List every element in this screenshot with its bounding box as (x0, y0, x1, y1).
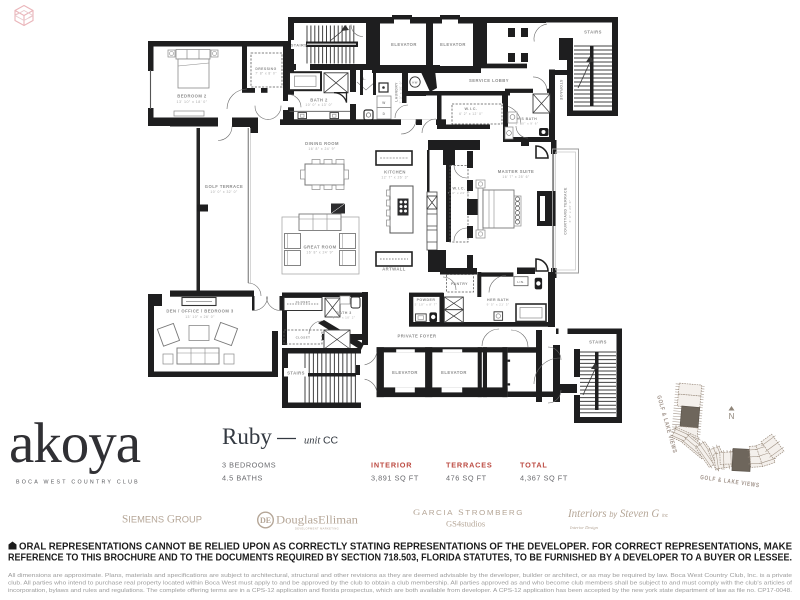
svg-text:MASTER SUITE: MASTER SUITE (498, 169, 535, 174)
svg-text:9' 4" x 10' 2": 9' 4" x 10' 2" (333, 316, 356, 320)
svg-text:W: W (382, 101, 385, 105)
svg-text:GS4studios: GS4studios (446, 519, 485, 529)
svg-text:CLOSET: CLOSET (296, 300, 311, 304)
svg-text:GARCIA STROMBERG: GARCIA STROMBERG (413, 507, 524, 517)
svg-text:ELEVATOR: ELEVATOR (441, 370, 467, 375)
svg-text:W.I.C.: W.I.C. (464, 107, 477, 111)
svg-text:4,367 SQ FT: 4,367 SQ FT (520, 474, 568, 483)
svg-text:akoya: akoya (9, 412, 141, 475)
svg-text:16' 8" x 24' 9": 16' 8" x 24' 9" (308, 147, 336, 151)
svg-text:6' 2" x 12' 0": 6' 2" x 12' 0" (459, 112, 483, 116)
svg-text:STORAGE: STORAGE (559, 80, 563, 101)
svg-text:SIEMENS GROUP: SIEMENS GROUP (122, 514, 202, 526)
svg-text:5' 10" x 8' 7": 5' 10" x 8' 7" (415, 302, 438, 306)
svg-text:GOLF TERRACE: GOLF TERRACE (205, 184, 243, 189)
svg-text:16' 8" x 24' 9": 16' 8" x 24' 9" (306, 251, 334, 255)
svg-text:7' 8" x 8' 0": 7' 8" x 8' 0" (255, 72, 277, 76)
svg-text:7' 4" x 23' 0": 7' 4" x 23' 0" (448, 191, 471, 195)
svg-text:ELEVATOR: ELEVATOR (440, 42, 466, 47)
svg-text:ORAL REPRESENTATIONS CANNOT BE: ORAL REPRESENTATIONS CANNOT BE RELIED UP… (19, 542, 792, 553)
svg-text:STAIRS: STAIRS (291, 44, 307, 48)
svg-text:HW: HW (412, 81, 418, 85)
svg-text:club. All parties who intend t: club. All parties who intend to purchase… (8, 581, 793, 587)
svg-text:POWDER: POWDER (417, 298, 436, 302)
svg-text:REFERENCE TO THIS BROCHURE AND: REFERENCE TO THIS BROCHURE AND TO THE DO… (8, 553, 792, 564)
svg-text:STAIRS: STAIRS (584, 30, 602, 35)
svg-text:ELEVATOR: ELEVATOR (391, 42, 417, 47)
svg-text:TOTAL: TOTAL (520, 461, 548, 470)
svg-text:LIN.: LIN. (517, 280, 524, 284)
svg-text:W.I.C.: W.I.C. (452, 187, 465, 191)
svg-text:BATH 2: BATH 2 (310, 98, 328, 103)
svg-text:STAIRS: STAIRS (589, 340, 607, 345)
svg-text:476 SQ FT: 476 SQ FT (446, 474, 487, 483)
svg-text:Interiors by Steven G inc: Interiors by Steven G inc (567, 506, 668, 520)
svg-text:All dimensions are approximate: All dimensions are approximate. Plans, m… (8, 573, 792, 579)
svg-text:DINING ROOM: DINING ROOM (305, 141, 339, 146)
svg-text:13' 10" x 26' 0": 13' 10" x 26' 0" (185, 315, 215, 319)
svg-text:DRESSING: DRESSING (255, 67, 276, 71)
svg-text:HIS BATH: HIS BATH (517, 117, 537, 121)
svg-text:6' 0" x 26' 0": 6' 0" x 26' 0" (568, 200, 572, 223)
svg-text:PRIVATE FOYER: PRIVATE FOYER (398, 334, 437, 339)
svg-text:CLOSET: CLOSET (296, 336, 311, 340)
svg-text:STAIRS: STAIRS (287, 371, 305, 376)
svg-text:ARTWALL: ARTWALL (382, 267, 406, 272)
svg-text:4.5 BATHS: 4.5 BATHS (222, 474, 263, 483)
svg-text:3 BEDROOMS: 3 BEDROOMS (222, 461, 276, 470)
svg-text:BOCA WEST COUNTRY CLUB: BOCA WEST COUNTRY CLUB (16, 480, 140, 486)
svg-text:5' 10" x 9' 6": 5' 10" x 9' 6" (516, 122, 539, 126)
svg-text:DouglasElliman: DouglasElliman (276, 515, 358, 527)
svg-text:unit CC: unit CC (304, 435, 339, 447)
svg-text:Interior Design: Interior Design (569, 525, 599, 530)
svg-text:SERVICE LOBBY: SERVICE LOBBY (469, 78, 509, 83)
svg-text:10' 0" x 13' 0": 10' 0" x 13' 0" (305, 103, 333, 107)
svg-text:7' 3" x 10' 0": 7' 3" x 10' 0" (399, 81, 403, 104)
svg-text:KITCHEN: KITCHEN (384, 170, 406, 175)
svg-text:D: D (383, 112, 386, 116)
svg-text:13' 10" x 18' 0": 13' 10" x 18' 0" (177, 100, 208, 104)
svg-text:ELEVATOR: ELEVATOR (392, 370, 418, 375)
svg-text:16' 7" x 25' 6": 16' 7" x 25' 6" (502, 175, 530, 179)
svg-text:N: N (729, 412, 735, 421)
svg-text:DEN / OFFICE / BEDROOM 3: DEN / OFFICE / BEDROOM 3 (166, 309, 234, 314)
svg-text:10' 0" x 32' 0": 10' 0" x 32' 0" (210, 190, 238, 194)
svg-text:GOLF & LAKE VIEWS: GOLF & LAKE VIEWS (700, 474, 760, 489)
svg-text:BATH 3: BATH 3 (336, 311, 351, 315)
svg-text:incorporation, bylaws and rule: incorporation, bylaws and rules and regu… (8, 588, 792, 594)
svg-text:DEVELOPMENT MARKETING: DEVELOPMENT MARKETING (295, 527, 339, 531)
svg-text:COURTYARD TERRACE: COURTYARD TERRACE (564, 187, 568, 235)
svg-text:3,891 SQ FT: 3,891 SQ FT (371, 474, 419, 483)
svg-text:DE: DE (260, 516, 271, 525)
svg-text:HER BATH: HER BATH (487, 298, 509, 302)
svg-text:TERRACES: TERRACES (446, 461, 493, 470)
svg-text:GREAT ROOM: GREAT ROOM (303, 245, 336, 250)
svg-text:9' 5" x 21' 3": 9' 5" x 21' 3" (487, 303, 510, 307)
svg-text:BEDROOM 2: BEDROOM 2 (177, 94, 207, 99)
svg-text:12' 7" x 26' 3": 12' 7" x 26' 3" (381, 176, 409, 180)
svg-text:INTERIOR: INTERIOR (371, 461, 412, 470)
svg-text:Ruby: Ruby (222, 424, 272, 449)
